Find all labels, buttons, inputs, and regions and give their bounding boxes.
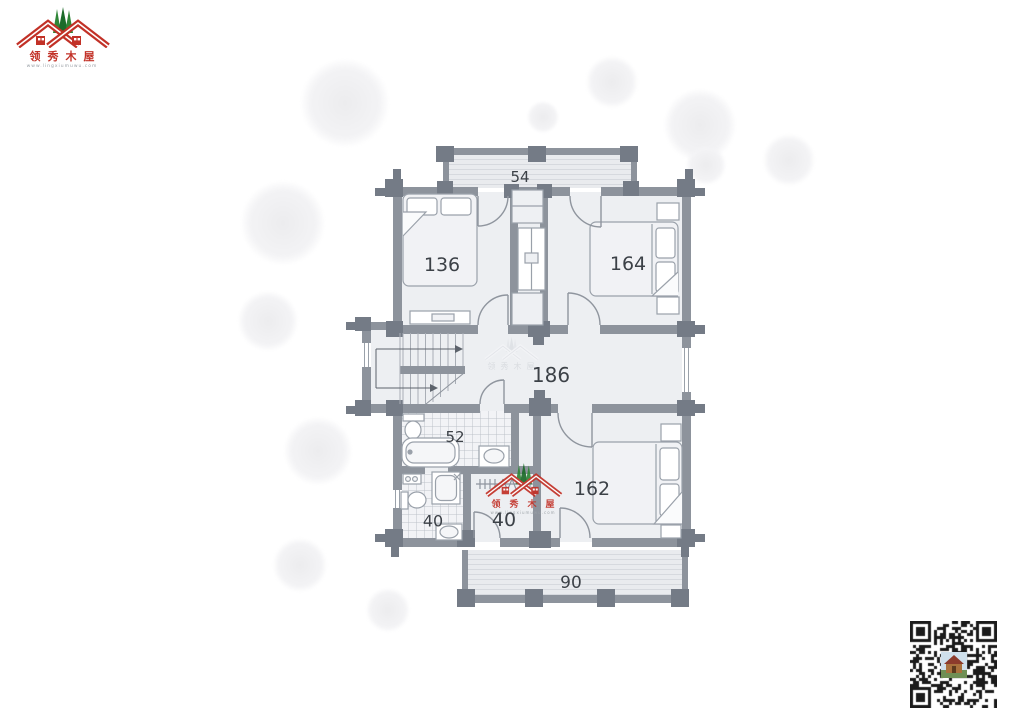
room-label-closet-40: 40 <box>492 509 516 531</box>
floor-plan-page: 领秀木屋 www.lingxiumuwu.com <box>0 0 1024 724</box>
room-label-hallway: 186 <box>532 363 570 387</box>
bathtub-drain <box>408 450 412 454</box>
watermark-red: 领秀木屋 www.lingxiumuwu.com <box>482 462 564 515</box>
room-label-bathroom-40: 40 <box>423 512 443 531</box>
shower-tray <box>436 476 457 501</box>
window-right-hall <box>682 348 691 392</box>
pillow <box>441 198 471 215</box>
room-label-balcony-top: 54 <box>510 168 529 186</box>
room-label-bedroom-164: 164 <box>610 253 646 275</box>
room-label-bedroom-162: 162 <box>574 478 610 500</box>
room-label-bedroom-136: 136 <box>424 254 460 276</box>
door-136-hall <box>478 295 508 325</box>
sink <box>484 449 504 463</box>
door-136-balcony <box>478 196 508 226</box>
pillow <box>660 448 679 480</box>
door-bath52-hall <box>480 380 504 404</box>
nightstand <box>657 203 679 220</box>
door-162-hall <box>558 413 592 447</box>
window-left-stair <box>362 343 371 367</box>
closet-shelf-bottom <box>512 293 543 325</box>
dresser-handle <box>432 314 454 321</box>
toilet <box>405 421 421 439</box>
nightstand <box>661 424 681 441</box>
watermark-gray-roofs-icon <box>482 336 540 361</box>
nightstand <box>657 297 679 314</box>
pillow <box>656 228 675 258</box>
toilet <box>408 492 426 508</box>
qr-code <box>908 619 1000 711</box>
wardrobe-handle <box>525 253 538 263</box>
room-label-bathroom-52: 52 <box>445 428 464 446</box>
watermark-red-roofs-icon <box>482 462 564 497</box>
qr-center-house-image <box>941 652 967 678</box>
toilet-tank <box>403 414 424 421</box>
door-164-hall <box>568 293 600 325</box>
room-label-balcony-bottom: 90 <box>560 573 582 593</box>
nightstand <box>661 525 681 538</box>
toilet-tank <box>401 492 408 509</box>
door-162-balcony <box>560 508 590 538</box>
